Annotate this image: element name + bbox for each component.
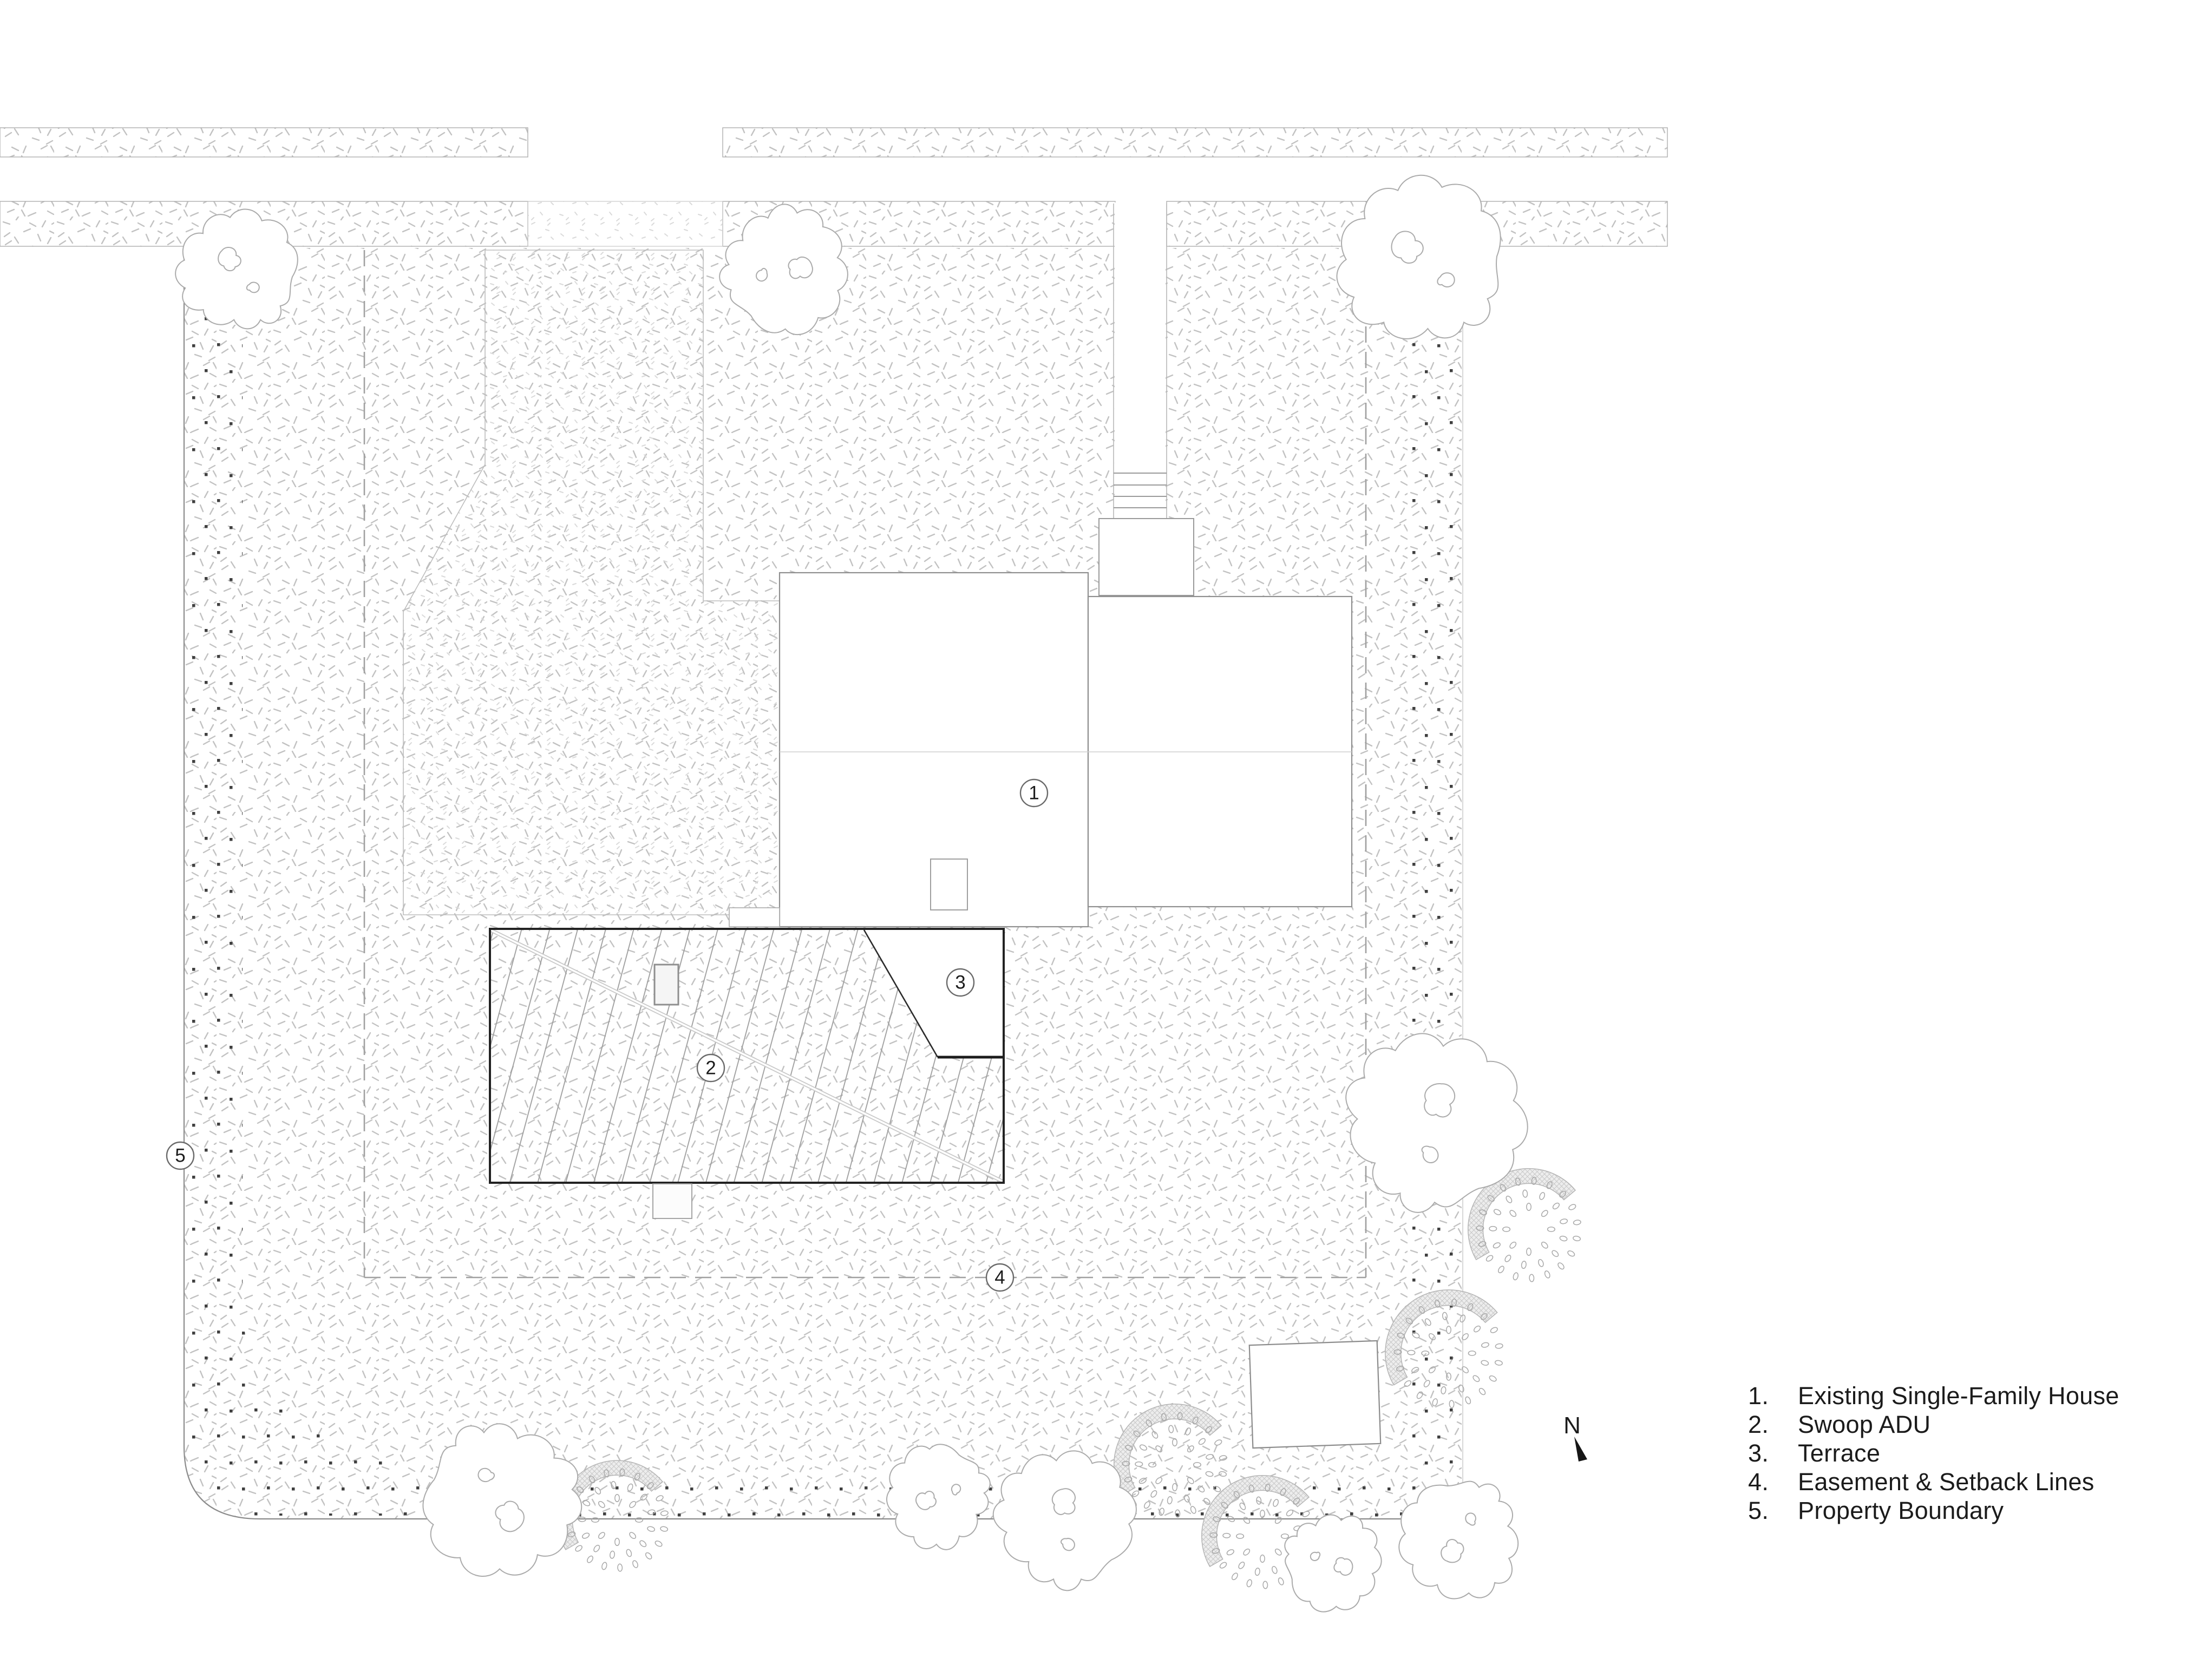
planting-bed-left <box>188 254 243 1440</box>
shrub-petal <box>1540 1209 1549 1218</box>
shrub-petal <box>1246 1579 1253 1587</box>
skylight <box>655 965 678 1005</box>
shrub-petal <box>1513 1272 1519 1280</box>
shrub-petal <box>1281 1534 1289 1538</box>
shrub-petal <box>601 1562 607 1570</box>
label-bubble-terrace: 3 <box>947 969 974 996</box>
shrub-petal <box>1559 1235 1567 1242</box>
shrub-petal <box>1472 1374 1481 1382</box>
svg-text:3: 3 <box>955 972 965 993</box>
label-bubble-adu: 2 <box>697 1054 724 1082</box>
shrub-petal <box>1509 1241 1517 1249</box>
shrub-petal <box>1274 1548 1282 1556</box>
shrub-petal <box>626 1549 632 1557</box>
legend-item-setback: 4. Easement & Setback Lines <box>1748 1467 2119 1496</box>
house-chimney <box>931 859 967 910</box>
legend-item-boundary: 5. Property Boundary <box>1748 1496 2119 1525</box>
shrub-petal <box>1495 1344 1503 1349</box>
legend: 1. Existing Single-Family House 2. Swoop… <box>1748 1381 2119 1525</box>
shrub-petal <box>1495 1360 1503 1366</box>
shrub-petal <box>645 1551 653 1560</box>
legend-label: Property Boundary <box>1798 1496 2119 1525</box>
shrub-petal <box>1557 1262 1565 1270</box>
shed <box>1249 1341 1380 1448</box>
label-bubble-boundary: 5 <box>167 1142 194 1169</box>
shrub-petal <box>647 1526 655 1532</box>
shrub-petal <box>1552 1202 1560 1210</box>
shrub-petal <box>581 1532 590 1539</box>
shrub-petal <box>610 1551 615 1559</box>
legend-label: Existing Single-Family House <box>1798 1381 2119 1410</box>
shrub-petal <box>1573 1220 1581 1225</box>
shrub-petal <box>1573 1236 1581 1242</box>
shrub-petal <box>1529 1274 1534 1282</box>
shrub-petal <box>1481 1360 1489 1366</box>
shrub-petal <box>1481 1342 1489 1348</box>
shrub-petal <box>1560 1218 1568 1224</box>
shrub-petal <box>1223 1533 1231 1538</box>
shrub-petal <box>1490 1326 1498 1334</box>
shrub-petal <box>1505 1195 1513 1204</box>
legend-number: 5. <box>1748 1496 1798 1525</box>
driveway-apron <box>528 201 723 246</box>
shrub-petal <box>1568 1203 1576 1211</box>
shrub-petal <box>1255 1568 1260 1576</box>
shrub-petal <box>1504 1254 1512 1263</box>
north-label: N <box>1563 1412 1581 1439</box>
shrub-petal <box>639 1539 647 1548</box>
shrub-petal <box>1238 1561 1246 1570</box>
shrub-petal <box>1468 1351 1476 1355</box>
shrub-petal <box>1278 1577 1285 1586</box>
shrub-petal <box>1493 1208 1502 1216</box>
shrub-petal <box>1236 1534 1244 1538</box>
shrub-petal <box>1219 1561 1228 1569</box>
legend-number: 2. <box>1748 1410 1798 1439</box>
legend-number: 4. <box>1748 1467 1798 1496</box>
shrub-petal <box>1489 1226 1497 1231</box>
shrub-petal <box>586 1555 594 1564</box>
shrub-petal <box>1497 1265 1506 1274</box>
shrub-petal <box>1478 1387 1486 1396</box>
shrub-petal <box>1527 1248 1531 1256</box>
swoop-adu <box>490 929 1004 1218</box>
tree <box>1337 175 1500 339</box>
svg-text:1: 1 <box>1029 783 1039 804</box>
label-bubble-setback: 4 <box>986 1264 1013 1291</box>
shrub-petal <box>574 1544 583 1552</box>
house-side-step <box>729 908 780 927</box>
legend-item-house: 1. Existing Single-Family House <box>1748 1381 2119 1410</box>
site-plan-page: { "north": { "label": "N" }, "plan": { "… <box>0 0 2212 1658</box>
porch <box>1099 519 1194 595</box>
shrub-petal <box>1527 1203 1531 1211</box>
svg-text:5: 5 <box>175 1145 185 1167</box>
shrub-petal <box>1509 1209 1517 1218</box>
shrub-petal <box>1493 1242 1501 1249</box>
shrub-petal <box>1231 1572 1239 1581</box>
shrub-petal <box>593 1544 601 1553</box>
legend-label: Terrace <box>1798 1439 2119 1467</box>
walkway <box>1114 202 1167 519</box>
shrub-petal <box>1473 1325 1482 1333</box>
shrub-petal <box>598 1531 606 1540</box>
shrub-petal <box>1521 1261 1527 1269</box>
legend-item-adu: 2. Swoop ADU <box>1748 1410 2119 1439</box>
svg-text:4: 4 <box>994 1267 1005 1288</box>
legend-number: 1. <box>1748 1381 1798 1410</box>
shrub-petal <box>655 1540 663 1548</box>
shrub-petal <box>1567 1250 1575 1257</box>
shrub-petal <box>1485 1254 1494 1262</box>
shrub-petal <box>1544 1270 1551 1279</box>
shrub-petal <box>660 1526 668 1532</box>
shrub-petal <box>1551 1249 1560 1257</box>
shrub-petal <box>615 1538 619 1546</box>
shrub-petal <box>629 1531 637 1540</box>
tree <box>1274 1502 1397 1625</box>
north-arrow: N <box>1563 1412 1587 1462</box>
shrub-petal <box>618 1564 623 1571</box>
shrub-petal <box>1537 1259 1544 1268</box>
legend-label: Swoop ADU <box>1798 1410 2119 1439</box>
shrub-petal <box>1242 1548 1251 1556</box>
north-needle-icon <box>1574 1437 1587 1462</box>
shrub-petal <box>632 1560 639 1569</box>
shrub-petal <box>1260 1555 1265 1563</box>
shrub-petal <box>1539 1192 1546 1201</box>
shrub-petal <box>1522 1190 1528 1197</box>
shrub-petal <box>1271 1566 1278 1575</box>
shrub-petal <box>1540 1241 1549 1249</box>
legend-item-terrace: 3. Terrace <box>1748 1439 2119 1467</box>
label-bubble-house: 1 <box>1020 779 1048 807</box>
shrub-petal <box>1489 1375 1497 1382</box>
adu-door-step <box>653 1184 692 1218</box>
shrub-petal <box>1503 1227 1510 1231</box>
shrub-petal <box>1548 1227 1555 1231</box>
shrub-petal <box>1263 1581 1268 1589</box>
svg-text:2: 2 <box>705 1058 716 1079</box>
shrub-petal <box>1226 1549 1235 1556</box>
legend-number: 3. <box>1748 1439 1798 1467</box>
shrub-petal <box>1464 1396 1471 1405</box>
legend-label: Easement & Setback Lines <box>1798 1467 2119 1496</box>
